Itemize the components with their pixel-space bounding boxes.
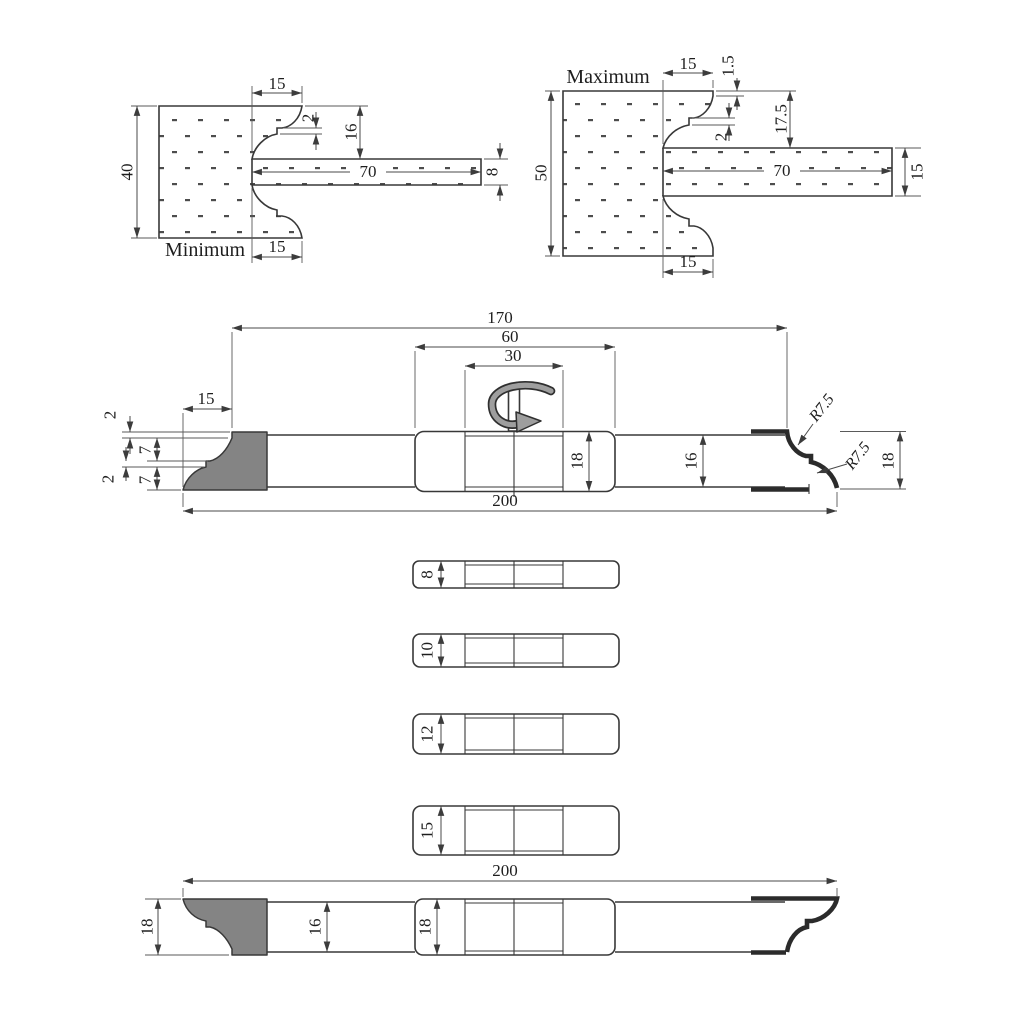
dim-asm2-hub-height: 18 — [416, 919, 435, 936]
dim-min-tongue-thickness: 8 — [483, 168, 502, 177]
dim-asm-land-mid: 2 — [99, 475, 118, 484]
assembled-left-knife — [183, 899, 267, 955]
dim-spacer-12: 12 — [418, 726, 437, 743]
cutterhead-assembly-section: 170 60 30 15 2 7 2 7 18 16 18 R7.5 R7.5 … — [99, 308, 907, 511]
dim-max-edge-land: 1.5 — [719, 55, 738, 76]
dim-max-depth: 17.5 — [772, 104, 791, 134]
maximum-panel-section: Maximum 50 15 1.5 17.5 2 70 15 15 — [532, 54, 927, 278]
assembled-cutterhead-section: 200 18 16 18 — [138, 861, 838, 955]
technical-drawing-page: 40 15 2 16 70 8 15 Minimum Maximum 50 — [0, 0, 1024, 1024]
spacer-10: 10 — [413, 634, 619, 667]
assembled-right-knife — [751, 899, 837, 953]
dim-max-top-width: 15 — [680, 54, 697, 73]
dim-min-height: 40 — [118, 164, 137, 181]
dim-asm-overall: 200 — [492, 491, 518, 510]
dim-asm-bar-height: 16 — [682, 453, 701, 470]
dim-asm2-bar-height: 16 — [306, 919, 325, 936]
cutter-set-drawing: 40 15 2 16 70 8 15 Minimum Maximum 50 — [0, 0, 1024, 1024]
dim-min-depth: 16 — [342, 124, 361, 141]
dim-asm-knife-height: 18 — [879, 453, 898, 470]
dim-asm-radius-bottom: R7.5 — [842, 439, 874, 474]
dim-max-bottom-width: 15 — [680, 252, 697, 271]
dim-asm-knife-width: 15 — [198, 389, 215, 408]
dim-asm-radius-top: R7.5 — [806, 391, 838, 426]
spacer-set-section: 8 10 12 15 — [413, 561, 619, 855]
spacer-8: 8 — [413, 561, 619, 588]
dim-max-height: 50 — [532, 165, 551, 182]
dim-asm-cove-top: 7 — [136, 445, 155, 454]
dim-spacer-8: 8 — [418, 570, 437, 579]
maximum-label: Maximum — [566, 66, 650, 88]
dim-asm-between-knives: 170 — [487, 308, 513, 327]
dim-asm-land-top: 2 — [101, 411, 120, 420]
spacer-12: 12 — [413, 714, 619, 754]
dim-max-step: 2 — [712, 133, 731, 142]
maximum-panel-profile — [563, 91, 892, 256]
dim-asm-cove-bottom: 7 — [136, 475, 155, 484]
rotation-direction-icon — [492, 385, 551, 432]
dim-min-step: 2 — [299, 114, 318, 123]
minimum-panel-section: 40 15 2 16 70 8 15 Minimum — [118, 74, 509, 263]
dim-asm2-knife-height: 18 — [138, 919, 157, 936]
dim-asm-hub-height: 18 — [568, 453, 587, 470]
dim-min-top-width: 15 — [269, 74, 286, 93]
dim-spacer-15: 15 — [418, 822, 437, 839]
minimum-label: Minimum — [165, 239, 245, 261]
dim-max-tongue-thickness: 15 — [908, 164, 927, 181]
spacer-15: 15 — [413, 806, 619, 855]
dim-spacer-10: 10 — [418, 642, 437, 659]
right-profile-knife — [751, 432, 837, 489]
dim-min-bottom-width: 15 — [269, 237, 286, 256]
dim-asm2-overall: 200 — [492, 861, 518, 880]
dim-asm-hub-width: 60 — [502, 327, 519, 346]
assembled-hub — [415, 899, 615, 955]
dim-max-tongue-length: 70 — [774, 161, 791, 180]
dim-asm-hub-inner: 30 — [505, 346, 522, 365]
dim-min-tongue-length: 70 — [360, 162, 377, 181]
